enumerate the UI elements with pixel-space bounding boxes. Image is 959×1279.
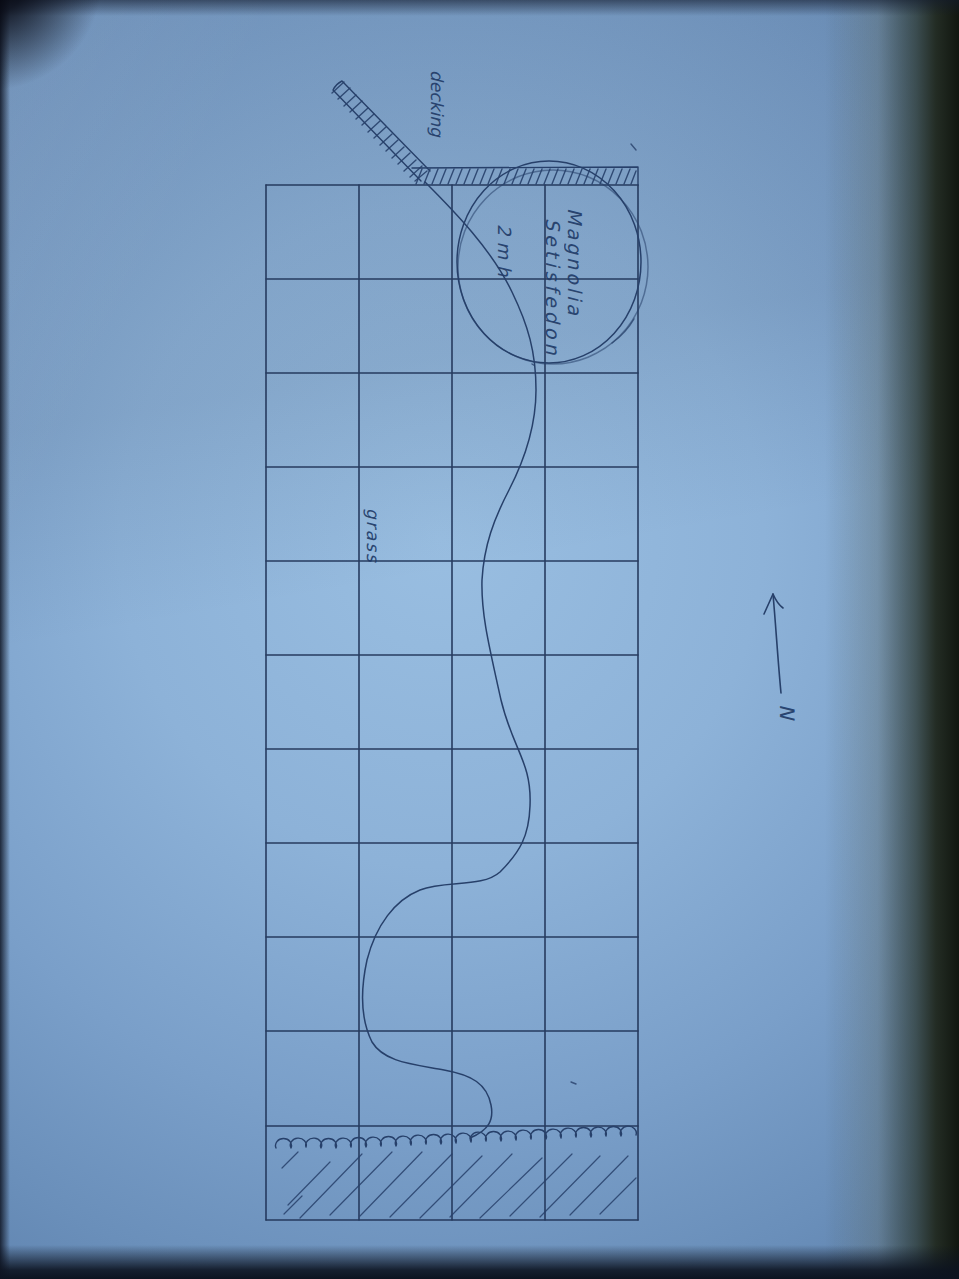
decking-edge-strip [412,167,638,185]
decking-diagonal-band [332,81,430,181]
north-arrow [764,594,783,693]
magnolia-label-line1: Magnolia [564,208,586,318]
photo-of-garden-plan: decking Magnolia Setisfedon 2mh grass N [0,0,959,1279]
hedge-scribble [275,1126,636,1148]
grid-lines [266,185,638,1220]
winding-path-line [363,182,536,1138]
decking-strip-hatching [416,169,636,184]
soil-hatching [282,1152,636,1218]
north-label: N [775,704,799,721]
plant-height-label: 2mh [494,224,515,282]
plan-sketch-svg: decking Magnolia Setisfedon 2mh grass N [0,0,959,1279]
decking-band-hatching [332,82,427,181]
decking-label: decking [427,70,447,138]
grass-label: grass [363,508,383,564]
magnolia-label-line2: Setisfedon [542,218,564,358]
